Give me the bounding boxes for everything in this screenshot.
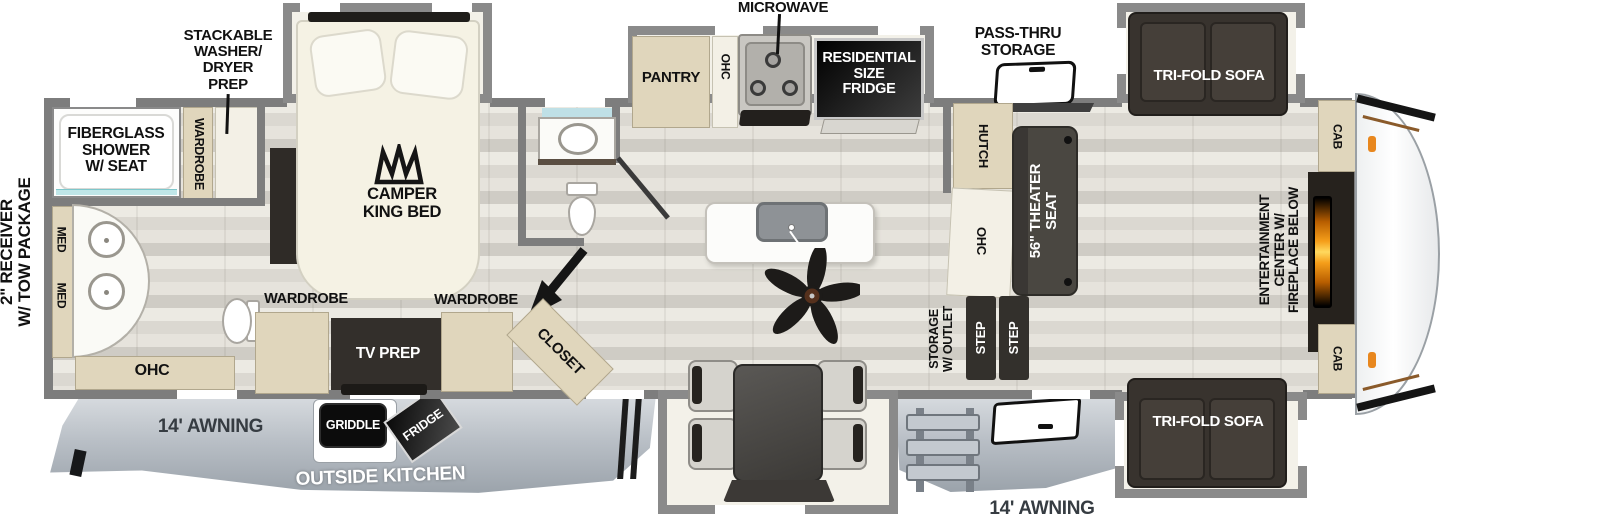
window — [177, 390, 237, 399]
wardrobe-left — [255, 312, 329, 394]
bed-pillow — [308, 27, 388, 98]
griddle-label: GRIDDLE — [321, 419, 385, 433]
dinette-chair — [817, 418, 867, 470]
bath2-sink — [558, 123, 598, 155]
king-bed-label: CAMPER KING BED — [346, 186, 458, 222]
sink-drain — [104, 238, 109, 243]
wardrobe-left-label: WARDROBE — [256, 292, 356, 308]
sofa-cushion — [1139, 398, 1205, 480]
tv-prep-cabinet: TV PREP — [331, 318, 445, 390]
stackable-line: WASHER/ — [168, 44, 288, 60]
awning-left-label: 14' AWNING — [138, 417, 283, 438]
fridge-label: RESIDENTIAL SIZE FRIDGE — [817, 51, 921, 98]
slide-window — [300, 3, 340, 12]
med-cabinet-label: MED — [55, 277, 68, 315]
dinette-table — [733, 364, 823, 482]
bed-pillow — [388, 29, 469, 102]
entry-step — [906, 464, 980, 481]
sofa-cushion — [1210, 22, 1276, 102]
hatch-shelf — [1000, 103, 1094, 112]
chair-back — [853, 424, 863, 462]
cupholder — [1064, 278, 1072, 286]
crown-icon — [372, 144, 426, 186]
hutch-label: HUTCH — [976, 111, 990, 181]
entry-door — [991, 397, 1082, 445]
headboard — [308, 12, 470, 22]
tv-prep-shelf — [341, 384, 427, 395]
bath2-wall — [518, 103, 526, 245]
wardrobe-right — [441, 312, 513, 392]
slide-window — [1298, 420, 1307, 466]
bath2-toilet-tank — [566, 182, 598, 196]
shower-glass — [56, 189, 177, 195]
marker-light-bottom — [1368, 352, 1376, 368]
bath-wardrobe-label: WARDROBE — [191, 108, 205, 200]
fireplace — [1313, 196, 1332, 308]
theater-label-line: 56" THEATER — [1028, 131, 1044, 291]
chair-back — [692, 366, 702, 404]
bath-ohc-label: OHC — [120, 362, 184, 379]
dinette-bench — [723, 480, 835, 502]
kitchen-ohc-label: OHC — [719, 47, 732, 87]
slide-window — [1117, 28, 1126, 74]
theater-seat-label: 56" THEATER SEAT — [1028, 131, 1064, 291]
window — [586, 390, 644, 399]
storage-outlet-label: STORAGE W/ OUTLET — [928, 293, 960, 385]
sofa-top-label: TRI-FOLD SOFA — [1130, 68, 1288, 84]
tv-prep-label: TV PREP — [331, 346, 445, 363]
burner — [765, 52, 781, 68]
pass-thru-hatch — [993, 61, 1076, 108]
entertainment-line: FIREPLACE BELOW — [1287, 166, 1302, 334]
stackable-line: PREP — [168, 77, 288, 93]
entertainment-line: CENTER W/ — [1273, 166, 1288, 334]
cab-top-label: CAB — [1331, 115, 1344, 159]
chair-back — [692, 424, 702, 462]
entertainment-line: ENTERTAINMENT — [1258, 166, 1273, 334]
burner — [750, 80, 766, 96]
marker-light-top — [1368, 136, 1376, 152]
kitchen-wall — [943, 103, 951, 193]
shower-label-line: FIBERGLASS — [56, 126, 176, 143]
cupholder — [1064, 136, 1072, 144]
outdoor-fridge-label: FRIDGE — [396, 403, 451, 447]
slide-window — [1296, 28, 1305, 74]
bath2-door — [614, 154, 672, 222]
stackable-line: STACKABLE — [168, 28, 288, 44]
hutch-ohc-label: OHC — [974, 219, 988, 263]
entry-door-opening — [1032, 390, 1090, 399]
king-bed-label-line: CAMPER — [346, 186, 458, 204]
fridge-label-line: RESIDENTIAL — [817, 51, 921, 67]
oven-front — [739, 110, 811, 126]
residential-fridge: RESIDENTIAL SIZE FRIDGE — [814, 38, 924, 120]
storage-outlet-line: STORAGE — [928, 293, 942, 385]
shower-label-line: SHOWER — [56, 143, 176, 160]
fridge-label-line: FRIDGE — [817, 82, 921, 98]
island-faucet — [788, 224, 795, 231]
theater-seat-back — [1014, 128, 1028, 294]
dinette-chair — [688, 418, 738, 470]
wardrobe-right-label: WARDROBE — [424, 293, 528, 309]
pass-thru-line: PASS-THRU — [943, 26, 1093, 43]
pass-thru-label: PASS-THRU STORAGE — [943, 26, 1093, 59]
bath2-wall — [518, 238, 584, 246]
entry-step — [906, 439, 980, 456]
entry-step — [906, 414, 980, 431]
tri-fold-sofa-bottom — [1127, 378, 1287, 488]
rv-floorplan: 14' AWNING GRIDDLE FRIDGE OUTSIDE KITCHE… — [0, 0, 1600, 521]
receiver-line2: W/ TOW PACKAGE — [16, 127, 34, 377]
ceiling-fan — [764, 248, 860, 344]
sofa-cushion — [1209, 398, 1275, 480]
med-cabinet-label: MED — [55, 221, 68, 259]
entry-door-handle — [1038, 424, 1053, 429]
receiver-line1: 2" RECEIVER — [0, 127, 16, 377]
storage-outlet-line: W/ OUTLET — [942, 293, 956, 385]
cab-bottom-label: CAB — [1331, 337, 1344, 381]
theater-label-line: SEAT — [1044, 131, 1060, 291]
window — [545, 98, 605, 107]
fridge-label-line: SIZE — [817, 67, 921, 83]
step-2-label: STEP — [1007, 308, 1021, 368]
rear-toilet-bowl — [222, 298, 252, 344]
awning-right-label: 14' AWNING — [968, 499, 1116, 520]
chair-back — [853, 366, 863, 404]
step-1-label: STEP — [974, 308, 988, 368]
fridge-counter — [820, 119, 920, 134]
outdoor-griddle: GRIDDLE — [319, 403, 387, 448]
stackable-label: STACKABLE WASHER/ DRYER PREP — [168, 28, 288, 93]
sink-drain — [104, 290, 109, 295]
sofa-cushion — [1140, 22, 1206, 102]
bath2-mirror — [542, 108, 612, 117]
bath-wall — [257, 103, 265, 206]
receiver-label: 2" RECEIVER W/ TOW PACKAGE — [0, 127, 40, 377]
hatch-handle — [1029, 67, 1045, 73]
burner — [782, 80, 798, 96]
pantry-label: PANTRY — [634, 70, 708, 86]
tri-fold-sofa-top — [1128, 12, 1288, 116]
shower-label: FIBERGLASS SHOWER W/ SEAT — [56, 126, 176, 176]
window — [70, 98, 136, 107]
bath2-counter-edge — [538, 159, 616, 165]
shower-label-line: W/ SEAT — [56, 159, 176, 176]
stackable-line: DRYER — [168, 60, 288, 76]
slide-window — [878, 26, 920, 35]
sofa-bottom-label: TRI-FOLD SOFA — [1129, 414, 1287, 430]
washer-dryer-prep-space — [215, 107, 259, 199]
pass-thru-line: STORAGE — [943, 43, 1093, 60]
microwave-label: MICROWAVE — [718, 0, 848, 16]
slide-window — [1115, 420, 1124, 466]
entertainment-label: ENTERTAINMENT CENTER W/ FIREPLACE BELOW — [1258, 166, 1312, 334]
slide-window — [432, 3, 472, 12]
king-bed-label-line: KING BED — [346, 204, 458, 222]
slide-window — [715, 505, 805, 514]
dinette-chair — [817, 360, 867, 412]
dinette-chair — [688, 360, 738, 412]
